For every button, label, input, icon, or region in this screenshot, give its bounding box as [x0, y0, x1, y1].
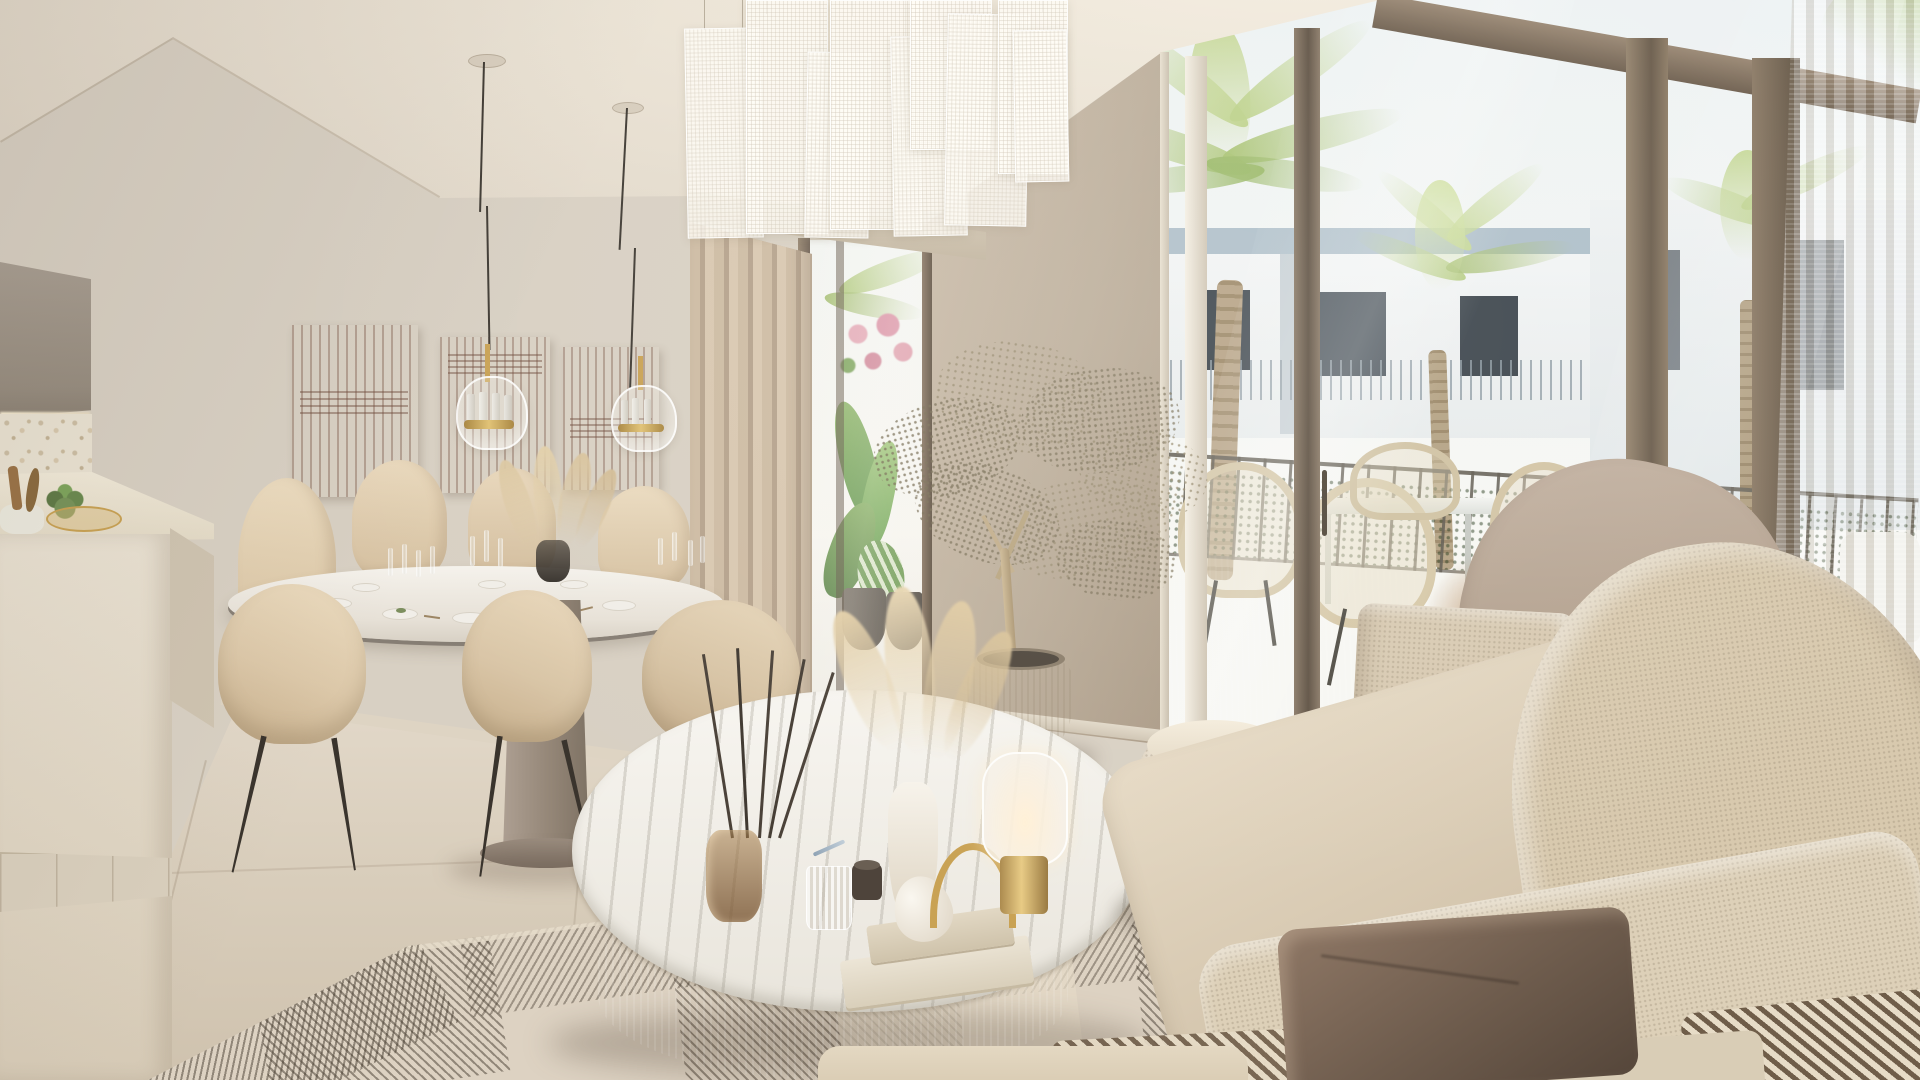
plate-garnish	[396, 608, 406, 613]
pendant-inner-cylinder	[644, 399, 651, 426]
pendant-inner-cylinder	[467, 394, 475, 422]
wine-glass	[688, 540, 693, 566]
ribbed-glass-cup	[806, 866, 852, 930]
interior-render-photo	[0, 0, 1920, 1080]
chandelier-wire	[742, 0, 743, 28]
wine-glass	[700, 536, 705, 563]
kitchen-gold-tray	[46, 506, 122, 532]
wine-glass	[402, 544, 407, 574]
bench-cushion-bottom	[818, 1046, 1248, 1080]
dining-chair-front	[462, 590, 592, 742]
chandelier-wire	[704, 0, 705, 30]
dining-chair-front	[218, 584, 366, 744]
kitchen-utensil-holder	[0, 504, 44, 534]
diffuser-amber-jar	[706, 830, 762, 922]
pendant-cable	[486, 206, 491, 350]
table-plate	[602, 600, 636, 611]
wall-art-panel-2-accent	[448, 352, 542, 374]
kitchen-peninsula-side	[170, 528, 214, 728]
pendant-inner-cylinder	[504, 395, 512, 422]
wine-glass	[388, 548, 393, 576]
wine-glass	[484, 530, 489, 562]
pendant-inner-cylinder	[621, 400, 628, 426]
pendant-inner-cylinder	[479, 392, 487, 422]
table-plate	[352, 583, 380, 592]
table-plate	[478, 580, 506, 589]
black-candle-top	[854, 860, 880, 870]
kitchen-upper-cabinet	[0, 262, 91, 418]
table-plate	[560, 580, 588, 589]
wine-glass	[470, 536, 475, 566]
wine-glass	[416, 550, 421, 577]
frosted-table-lamp-gold-base	[1000, 856, 1048, 914]
wine-glass	[672, 532, 677, 561]
door-leading-stile	[1185, 56, 1207, 814]
wine-glass	[498, 538, 503, 567]
pendant-inner-cylinder	[492, 393, 500, 422]
kitchen-peninsula-front	[0, 534, 172, 1080]
wine-glass	[658, 538, 663, 565]
pendant-inner-cylinder	[632, 398, 639, 426]
wine-glass	[430, 546, 435, 574]
pendant-gold-ring	[464, 420, 514, 429]
pendant-gold-ring	[618, 424, 664, 432]
frosted-table-lamp-glass	[982, 752, 1068, 866]
wall-art-panel-1-accent	[300, 388, 408, 414]
door-handle	[1322, 470, 1327, 536]
palm-frond	[1160, 157, 1266, 199]
sofa-pillow-brown-velvet	[1277, 906, 1640, 1080]
ceiling-rose	[468, 54, 506, 68]
chandelier-glass-panel	[1013, 30, 1070, 183]
